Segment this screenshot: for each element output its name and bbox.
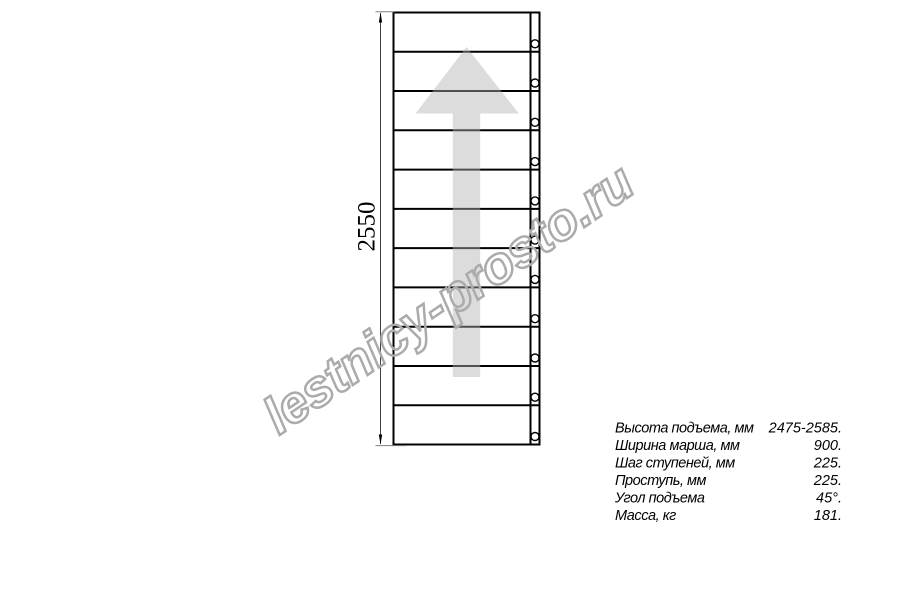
svg-text:Угол подъема: Угол подъема [614, 491, 705, 507]
svg-text:225.: 225. [813, 456, 842, 472]
svg-text:2475-2585.: 2475-2585. [768, 421, 842, 437]
svg-text:181.: 181. [814, 508, 842, 524]
svg-text:225.: 225. [813, 473, 842, 489]
svg-text:Шаг ступеней, мм: Шаг ступеней, мм [615, 456, 735, 472]
svg-text:900.: 900. [814, 438, 842, 454]
svg-text:45°.: 45°. [816, 491, 842, 507]
svg-text:2550: 2550 [354, 202, 381, 252]
svg-text:Масса, кг: Масса, кг [615, 508, 676, 524]
svg-text:Ширина марша, мм: Ширина марша, мм [615, 438, 740, 454]
svg-text:Проступь, мм: Проступь, мм [615, 473, 707, 489]
svg-text:Высота подъема, мм: Высота подъема, мм [615, 421, 754, 437]
